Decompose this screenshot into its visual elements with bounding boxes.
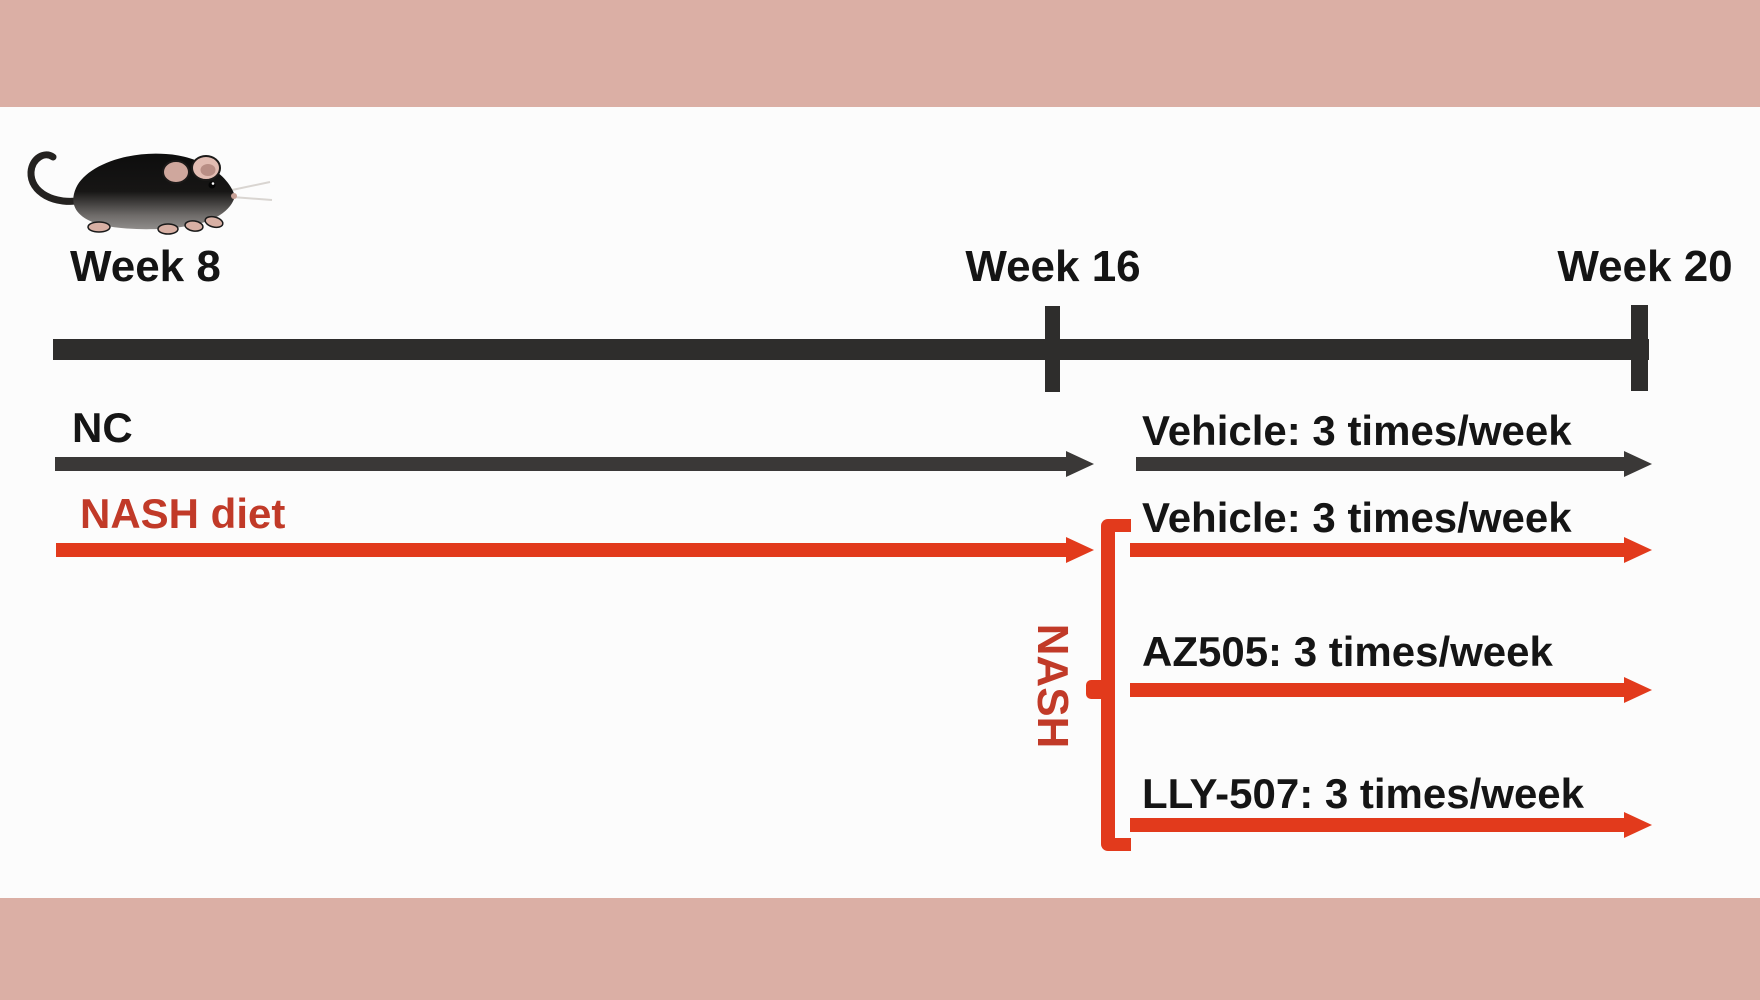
nash-vehicle-label: Vehicle: 3 times/week: [1142, 497, 1572, 539]
week16-tick: [1045, 306, 1060, 392]
week20-tick: [1631, 305, 1648, 391]
week20-label: Week 20: [1557, 245, 1732, 289]
week16-label: Week 16: [965, 245, 1140, 289]
nash-diet-arrow: [56, 543, 1066, 557]
nc-treatment-arrow: [1136, 457, 1624, 471]
nc-diet-arrow: [55, 457, 1066, 471]
main-timeline-bar: [53, 339, 1649, 360]
nash-bracket-top-arm: [1108, 519, 1131, 532]
nash-az505-arrow: [1130, 683, 1624, 697]
nash-lly507-arrow: [1130, 818, 1624, 832]
nash-az505-label: AZ505: 3 times/week: [1142, 631, 1553, 673]
nash-bracket-nub: [1086, 680, 1102, 699]
nash-bracket-label: NASH: [1030, 624, 1074, 749]
nc-treatment-label: Vehicle: 3 times/week: [1142, 410, 1572, 452]
nash-bracket-bottom-arm: [1108, 838, 1131, 851]
nash-diet-label: NASH diet: [80, 493, 285, 535]
mouse-icon: [18, 126, 288, 241]
week8-label: Week 8: [70, 245, 221, 289]
nash-lly507-label: LLY-507: 3 times/week: [1142, 773, 1584, 815]
nash-bracket-vertical: [1101, 519, 1115, 851]
nash-vehicle-arrow: [1130, 543, 1624, 557]
bottom-border-band: [0, 898, 1760, 1000]
top-border-band: [0, 0, 1760, 107]
nc-label: NC: [72, 407, 133, 449]
figure-canvas: Week 8 Week 16 Week 20 NC Vehicle: 3 tim…: [0, 0, 1760, 1000]
